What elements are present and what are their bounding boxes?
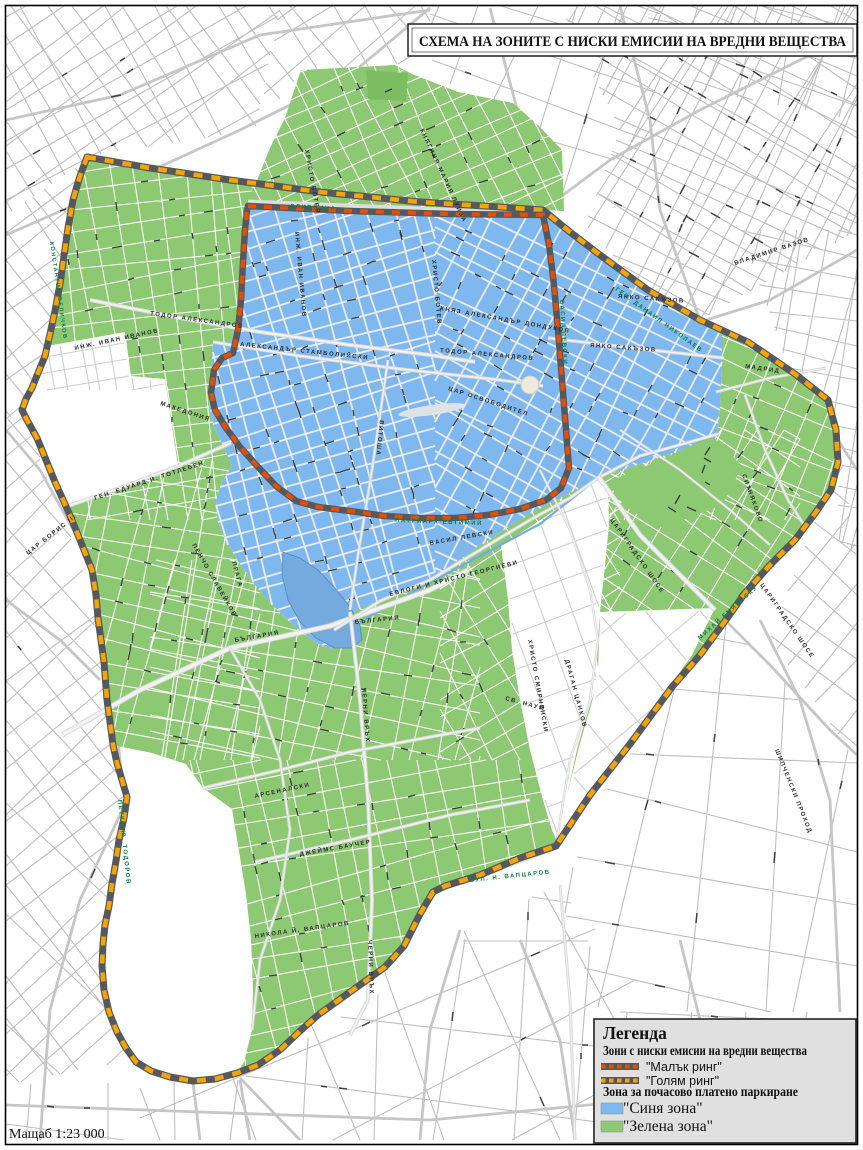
svg-text:Зона за почасово платено парки: Зона за почасово платено паркиране: [603, 1084, 798, 1099]
svg-text:"Зелена зона": "Зелена зона": [623, 1118, 713, 1135]
svg-text:Мащаб 1:23 000: Мащаб 1:23 000: [9, 1127, 105, 1142]
svg-text:"Малък ринг": "Малък ринг": [646, 1060, 722, 1074]
svg-text:Зони с ниски емисии на вредни: Зони с ниски емисии на вредни вещества: [603, 1043, 807, 1058]
svg-text:Легенда: Легенда: [603, 1023, 667, 1043]
svg-text:"Синя зона": "Синя зона": [623, 1100, 703, 1117]
svg-text:СХЕМА НА ЗОНИТЕ С НИСКИ ЕМИСИИ: СХЕМА НА ЗОНИТЕ С НИСКИ ЕМИСИИ НА ВРЕДНИ…: [419, 34, 846, 50]
